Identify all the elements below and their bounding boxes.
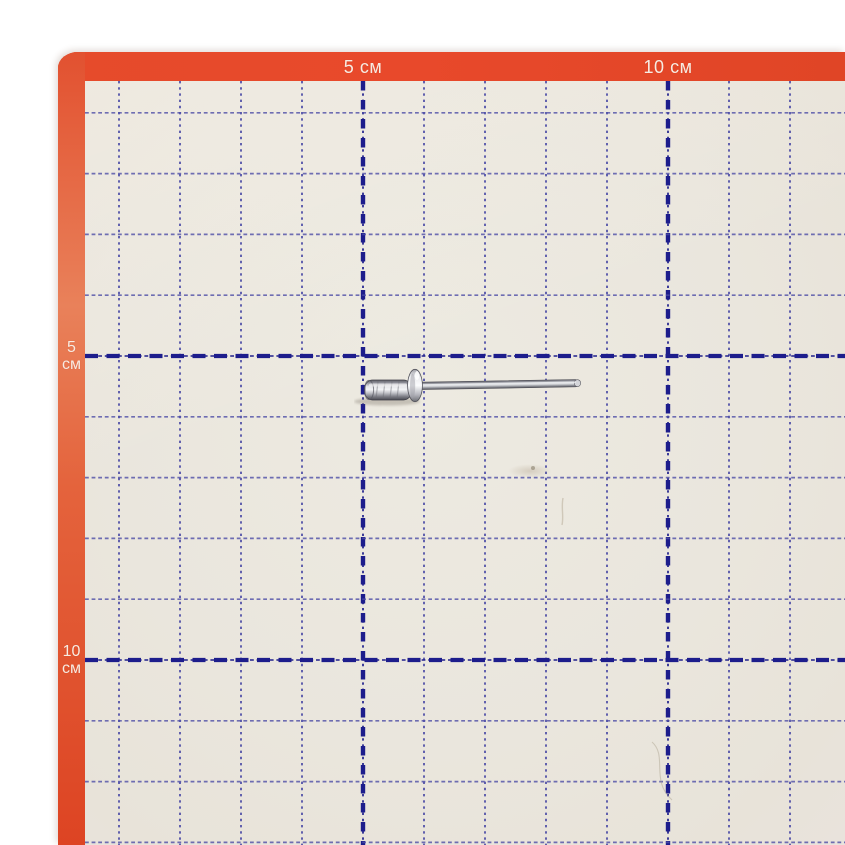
ruler-label-left-5cm: 5см [58, 339, 85, 373]
photo-scene: 5 см10 см 5см10см [0, 0, 845, 845]
mat-smudge [508, 464, 552, 478]
ruler-label-top-10cm: 10 см [644, 52, 693, 81]
rivet-mandrel [416, 379, 581, 389]
rivet-photo [354, 362, 590, 408]
rivet-flange [408, 369, 423, 401]
mat-grid-surface [85, 81, 845, 845]
ruler-label-value: 5 [58, 339, 85, 356]
ruler-left: 5см10см [58, 52, 85, 845]
rivet-body [364, 380, 411, 400]
mandrel-tip [574, 380, 581, 387]
dust-speck [531, 466, 535, 470]
ruler-label-value: 10 [58, 643, 85, 660]
ruler-label-top-5cm: 5 см [344, 52, 382, 81]
ruler-label-left-10cm: 10см [58, 643, 85, 677]
ruler-label-unit: см [58, 356, 85, 373]
ruler-label-unit: см [58, 660, 85, 677]
measuring-mat: 5 см10 см 5см10см [58, 52, 845, 845]
ruler-top: 5 см10 см [58, 52, 845, 81]
